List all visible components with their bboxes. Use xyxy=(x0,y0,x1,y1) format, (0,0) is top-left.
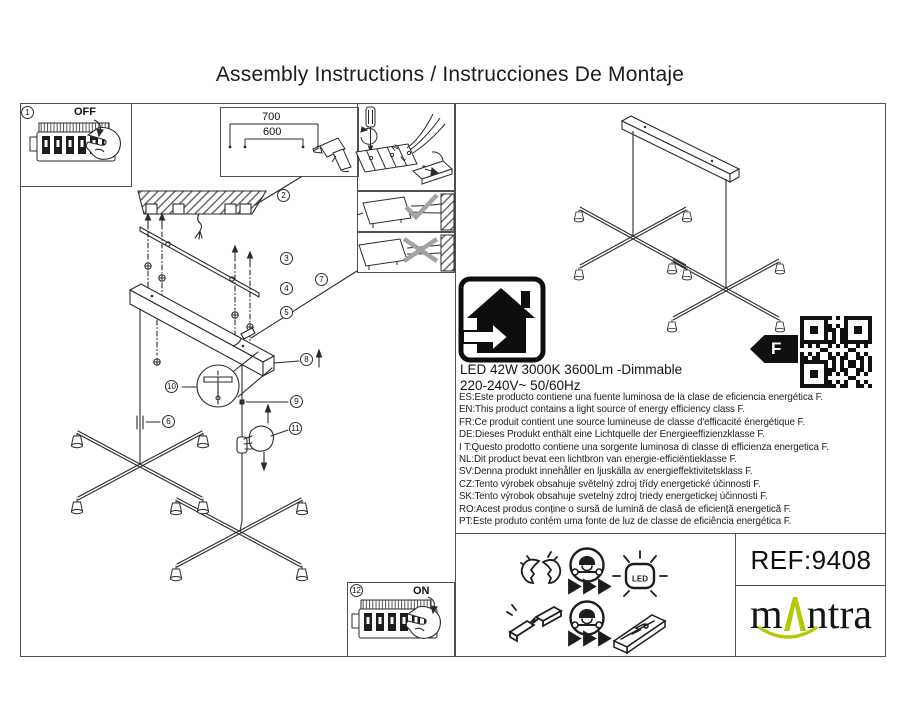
energy-language-block: ES:Este producto contiene una fuente lum… xyxy=(459,392,887,528)
energy-line-ro: RO:Acest produs conține o sursă de lumin… xyxy=(459,504,887,516)
page-title: Assembly Instructions / Instrucciones De… xyxy=(0,63,900,87)
energy-line-de: DE:Dieses Produkt enthält eine Lichtquel… xyxy=(459,429,887,441)
callout-step-5: 5 xyxy=(280,306,293,319)
callout-step-4: 4 xyxy=(280,282,293,295)
energy-line-es: ES:Este producto contiene una fuente lum… xyxy=(459,392,887,404)
energy-line-sk: SK:Tento výrobok obsahuje svetelný zdroj… xyxy=(459,491,887,503)
off-label: OFF xyxy=(74,106,96,118)
dimension-700: 700 xyxy=(262,111,280,123)
reference-number: REF:9408 xyxy=(736,545,886,576)
wiring-panel-correct xyxy=(357,191,455,232)
spec-line-2: 220-240V~ 50/60Hz xyxy=(460,378,580,393)
callout-step-3: 3 xyxy=(280,252,293,265)
wiring-panel-incorrect xyxy=(357,232,455,273)
info-footer-divider xyxy=(455,533,886,534)
step12-panel xyxy=(347,582,455,657)
callout-step-11: 11 xyxy=(289,422,302,435)
wiring-panel-terminal xyxy=(357,103,455,191)
energy-line-sv: SV:Denna produkt innehåller en ljuskälla… xyxy=(459,466,887,478)
energy-line-fr: FR:Ce produit contient une source lumine… xyxy=(459,417,887,429)
energy-line-en: EN:This product contains a light source … xyxy=(459,404,887,416)
energy-class-letter: F xyxy=(771,339,781,359)
left-right-divider xyxy=(455,103,456,657)
callout-step-12: 12 xyxy=(350,584,363,597)
callout-step-10: 10 xyxy=(165,380,178,393)
callout-step-7: 7 xyxy=(315,273,328,286)
callout-step-9: 9 xyxy=(290,395,303,408)
dimension-600: 600 xyxy=(263,126,281,138)
brand-arc-icon xyxy=(757,626,819,644)
energy-line-pt: PT:Este produto contém uma fonte de luz … xyxy=(459,516,887,528)
callout-step-2: 2 xyxy=(277,189,290,202)
measurement-panel xyxy=(220,107,359,177)
spec-line-1: LED 42W 3000K 3600Lm -Dimmable xyxy=(460,362,682,377)
on-label: ON xyxy=(413,585,430,597)
energy-line-nl: NL:Dit product bevat een lichtbron van e… xyxy=(459,454,887,466)
callout-step-6: 6 xyxy=(162,415,175,428)
assembly-instruction-sheet: { "title": "Assembly Instructions / Inst… xyxy=(0,0,900,720)
callout-step-1: 1 xyxy=(21,106,34,119)
callout-step-8: 8 xyxy=(300,353,313,366)
energy-line-cz: CZ:Tento výrobek obsahuje světelný zdroj… xyxy=(459,479,887,491)
ref-brand-divider xyxy=(735,585,886,586)
energy-line-it: I T:Questo prodotto contiene una sorgent… xyxy=(459,442,887,454)
